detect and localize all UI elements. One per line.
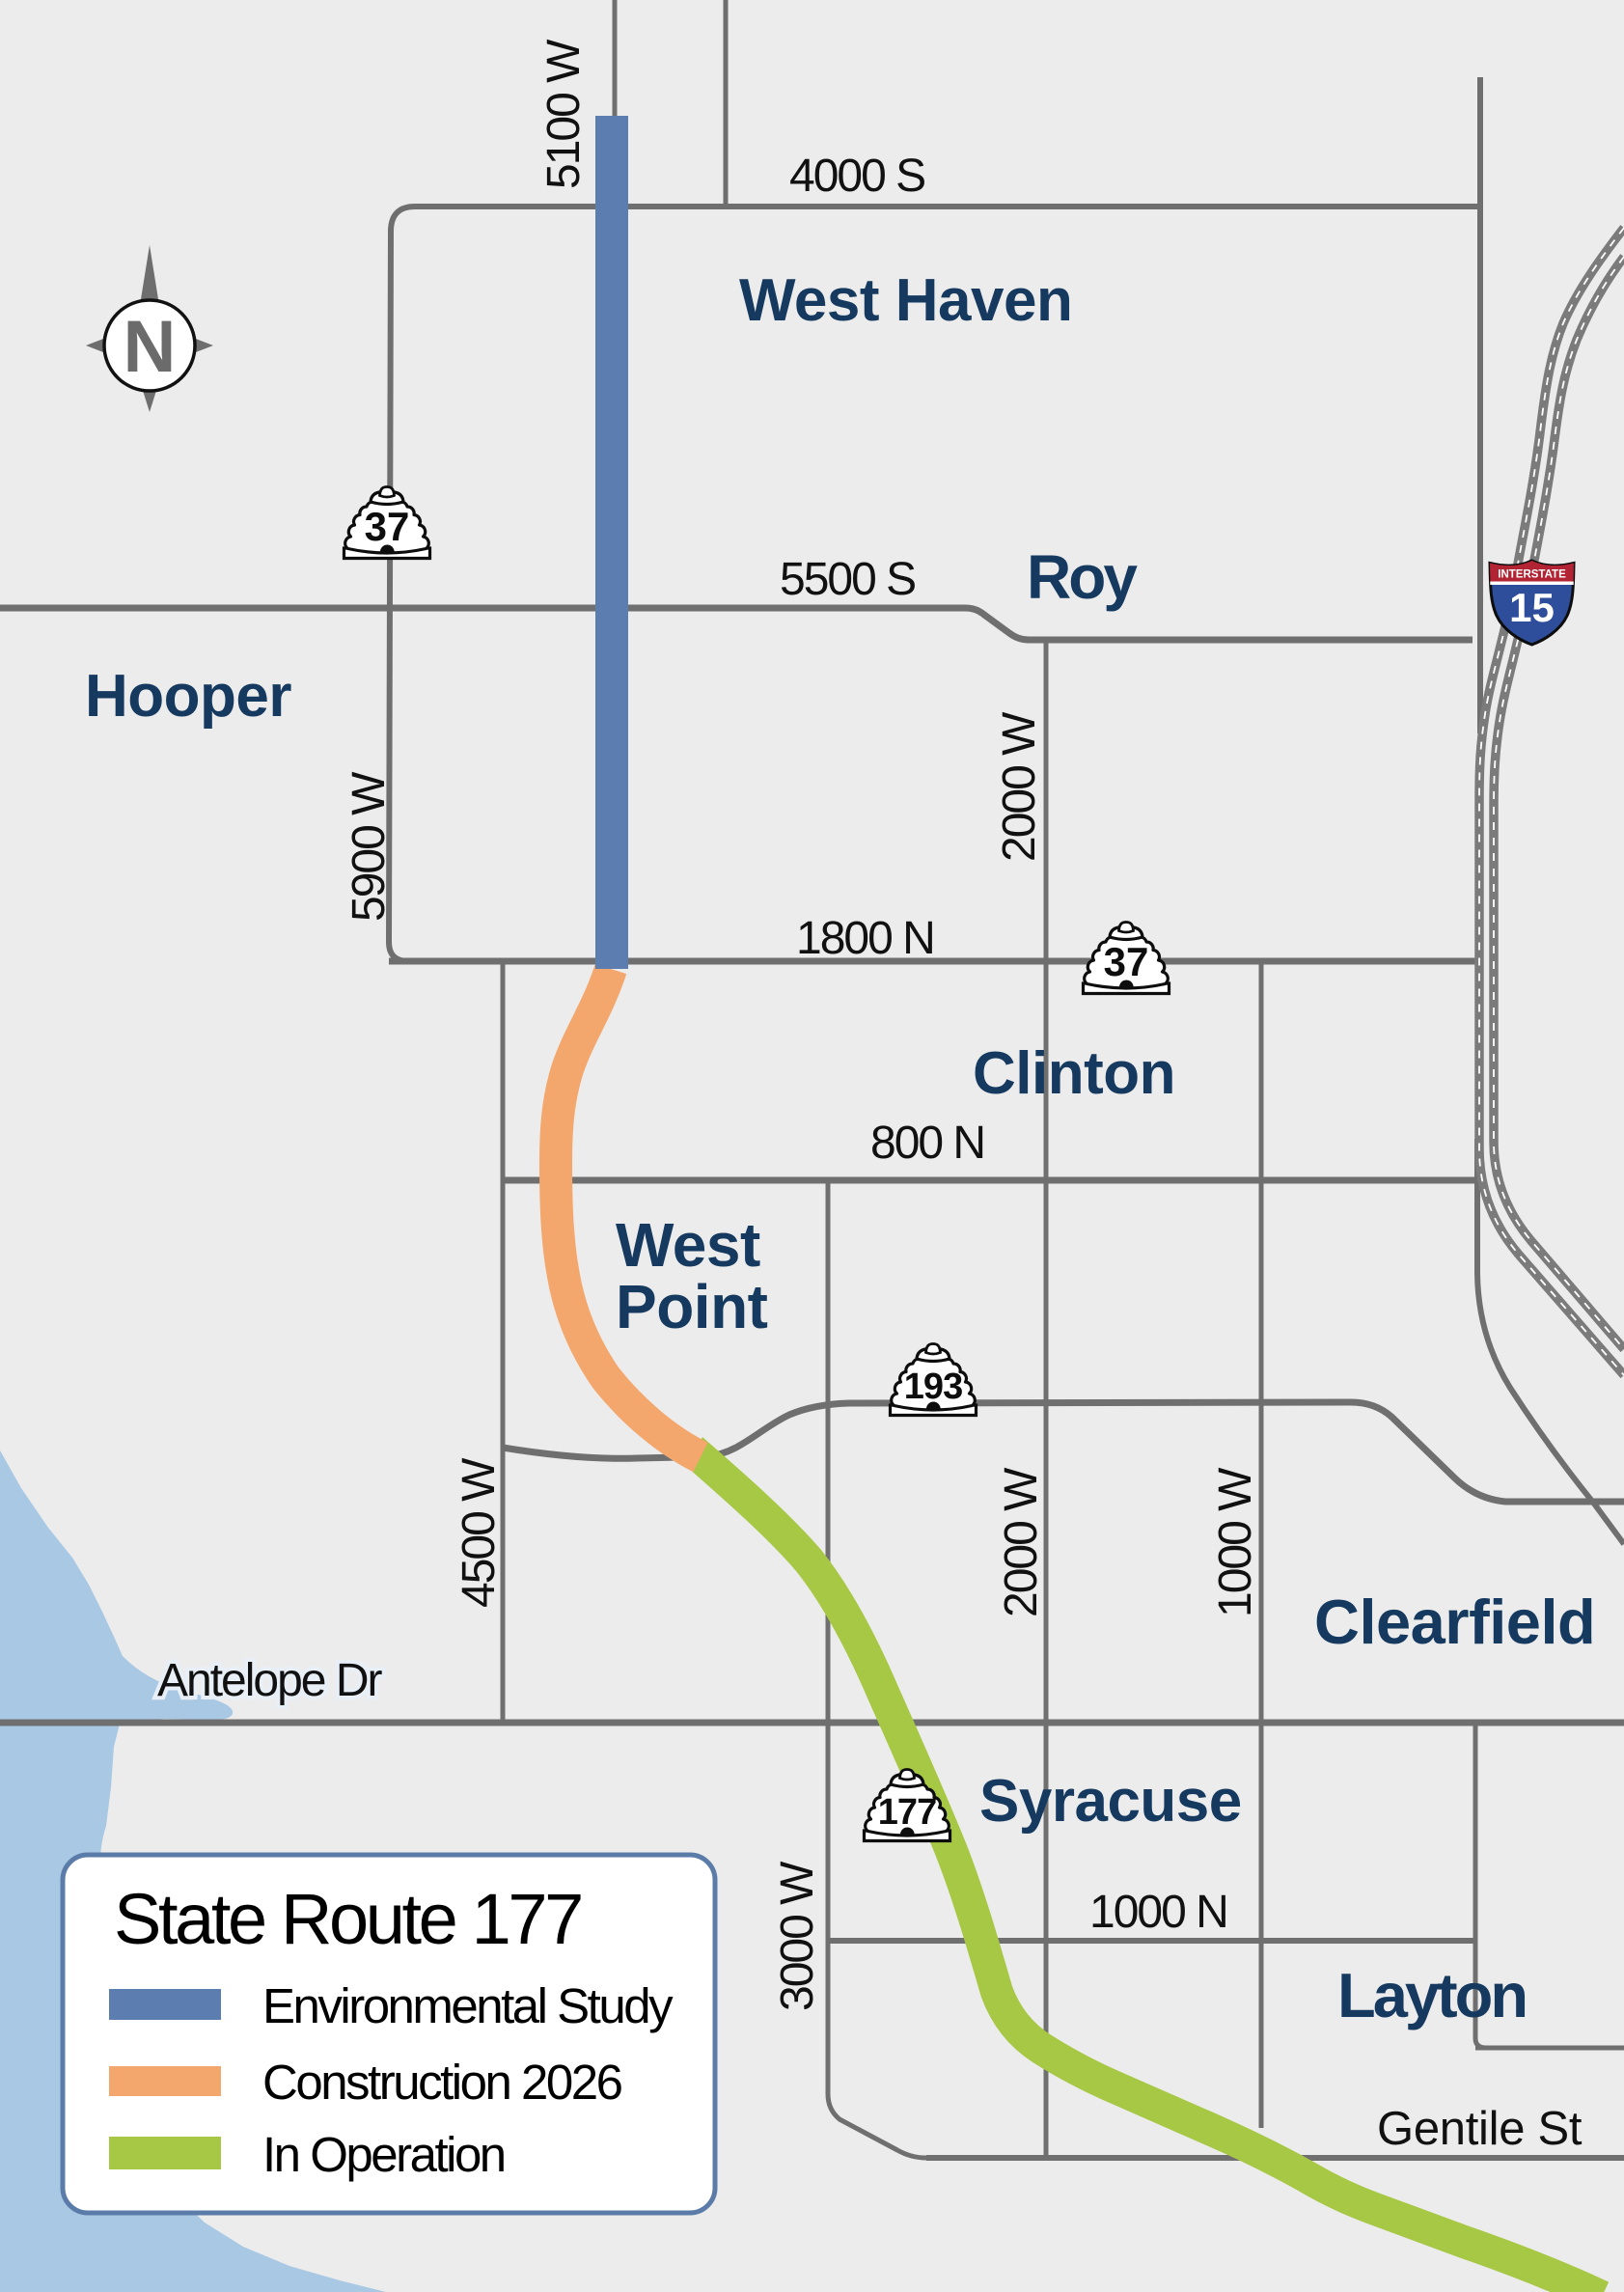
svg-text:Construction 2026: Construction 2026 [262,2055,622,2110]
svg-text:4500 W: 4500 W [454,1457,505,1608]
svg-text:Hooper: Hooper [85,663,291,730]
svg-text:37: 37 [365,504,410,549]
svg-text:Antelope Dr: Antelope Dr [157,1655,382,1706]
svg-text:Roy: Roy [1027,542,1138,612]
svg-text:800 N: 800 N [870,1118,984,1169]
svg-text:N: N [124,306,177,388]
svg-text:37: 37 [1104,939,1149,984]
svg-text:West: West [616,1210,760,1280]
svg-text:3000 W: 3000 W [772,1861,823,2011]
svg-text:Clinton: Clinton [973,1040,1175,1107]
svg-text:Environmental Study: Environmental Study [262,1978,674,2033]
svg-text:2000 W: 2000 W [996,1467,1047,1617]
svg-text:1000 W: 1000 W [1210,1467,1261,1617]
svg-text:1000 N: 1000 N [1089,1887,1227,1938]
svg-text:Clearfield: Clearfield [1314,1587,1595,1657]
svg-text:Syracuse: Syracuse [979,1768,1242,1835]
svg-text:West Haven: West Haven [739,267,1072,334]
svg-text:Point: Point [616,1272,768,1341]
svg-text:5900 W: 5900 W [344,771,395,922]
svg-text:2000 W: 2000 W [994,711,1045,862]
svg-text:1800 N: 1800 N [796,913,934,964]
svg-text:4000 S: 4000 S [789,151,924,202]
svg-text:State Route 177: State Route 177 [114,1879,581,1959]
svg-text:Layton: Layton [1337,1960,1526,2030]
svg-text:193: 193 [904,1367,962,1407]
svg-text:177: 177 [878,1792,936,1833]
svg-text:Gentile St: Gentile St [1377,2103,1583,2155]
svg-text:5100 W: 5100 W [538,39,590,189]
svg-text:In Operation: In Operation [262,2127,505,2182]
svg-text:5500 S: 5500 S [780,554,915,605]
